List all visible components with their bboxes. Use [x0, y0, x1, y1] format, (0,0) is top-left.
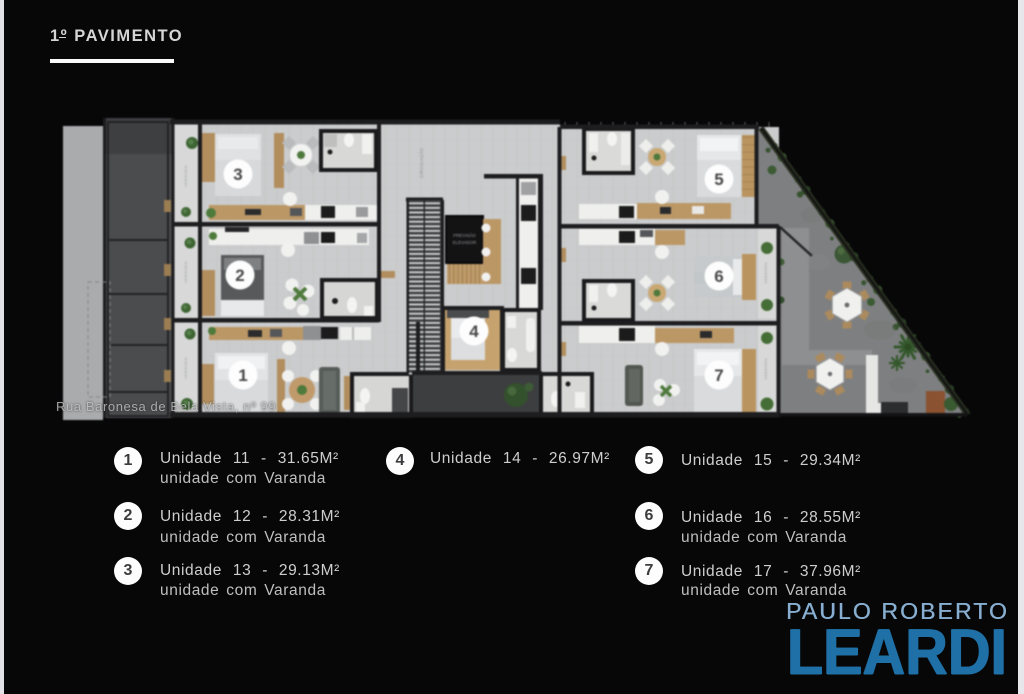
svg-text:VARANDA: VARANDA [183, 261, 188, 283]
svg-text:PREVISÃO: PREVISÃO [453, 233, 476, 238]
svg-text:CIRCULAÇÃO: CIRCULAÇÃO [419, 147, 424, 178]
svg-text:6: 6 [714, 267, 723, 286]
svg-text:5: 5 [714, 170, 723, 189]
svg-text:VARANDA: VARANDA [183, 165, 188, 187]
svg-text:2: 2 [235, 266, 244, 285]
svg-text:7: 7 [714, 366, 723, 385]
svg-text:ELEVADOR: ELEVADOR [453, 240, 477, 245]
svg-text:VARANDA: VARANDA [763, 262, 768, 284]
svg-text:1: 1 [238, 366, 247, 385]
svg-text:VARANDA: VARANDA [183, 357, 188, 379]
svg-text:VARANDA: VARANDA [763, 358, 768, 380]
svg-text:3: 3 [233, 165, 242, 184]
svg-text:4: 4 [469, 322, 479, 341]
